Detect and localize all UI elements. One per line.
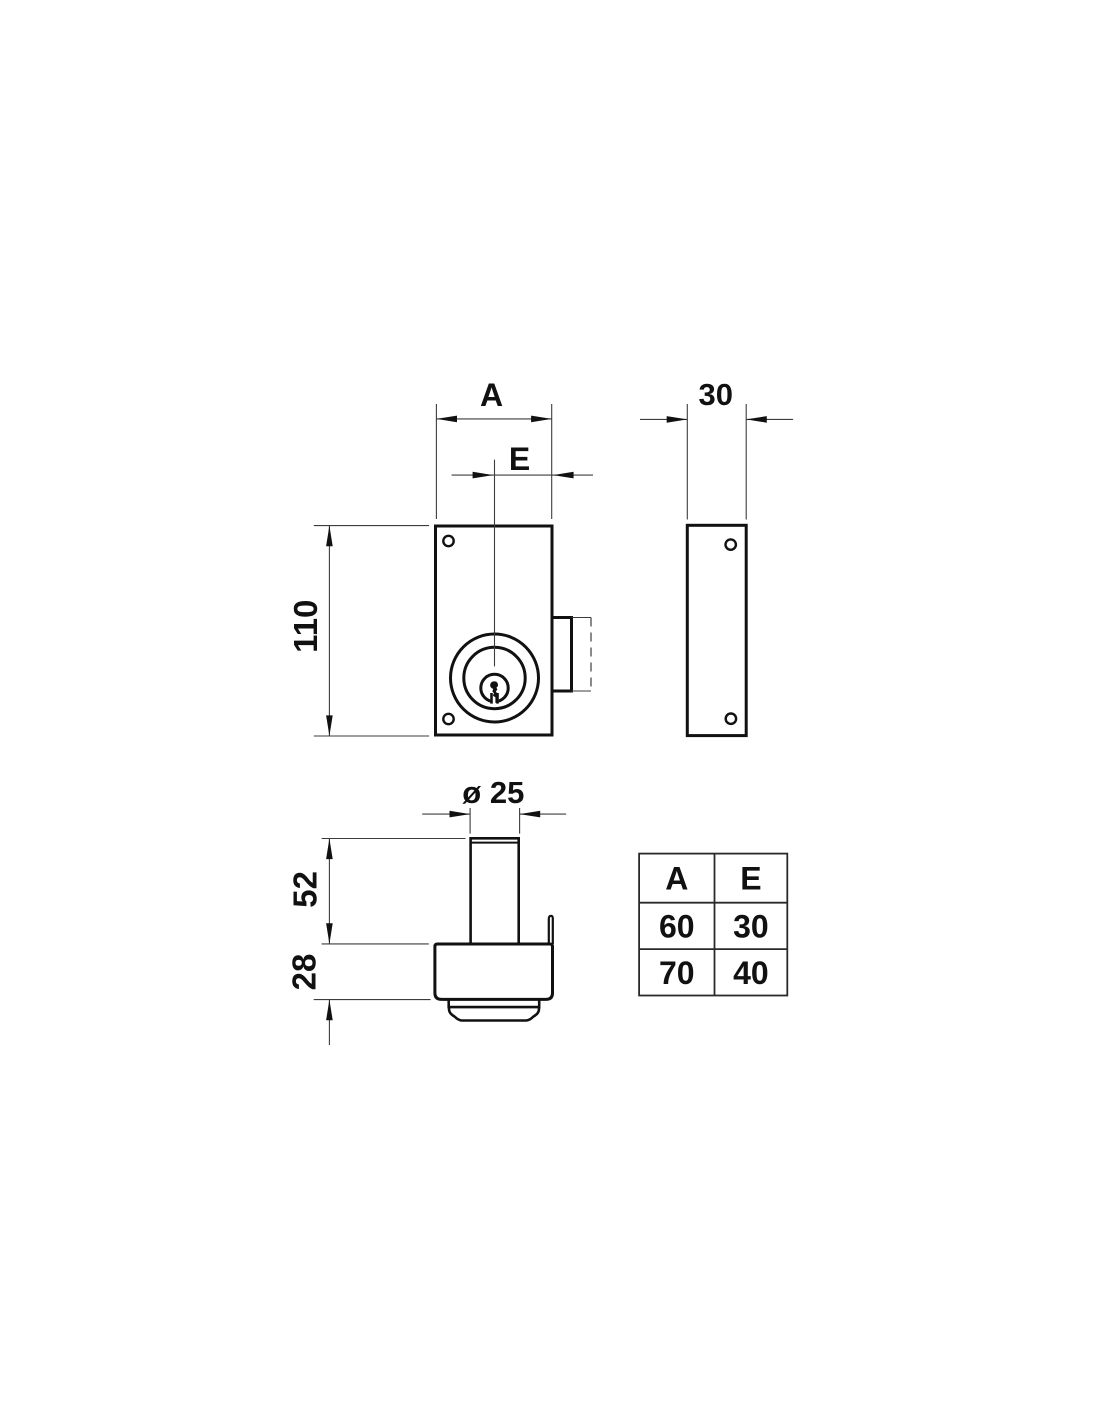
- svg-text:A: A: [480, 377, 503, 413]
- svg-text:A: A: [665, 861, 688, 897]
- svg-text:E: E: [509, 441, 530, 477]
- svg-text:70: 70: [659, 955, 695, 991]
- svg-text:60: 60: [659, 909, 695, 945]
- svg-text:28: 28: [286, 954, 323, 991]
- svg-text:40: 40: [733, 955, 769, 991]
- svg-text:110: 110: [287, 600, 324, 653]
- svg-text:E: E: [740, 861, 761, 897]
- svg-text:30: 30: [699, 377, 733, 412]
- svg-text:52: 52: [286, 871, 323, 908]
- svg-text:30: 30: [733, 909, 769, 945]
- svg-text:ø 25: ø 25: [462, 775, 524, 810]
